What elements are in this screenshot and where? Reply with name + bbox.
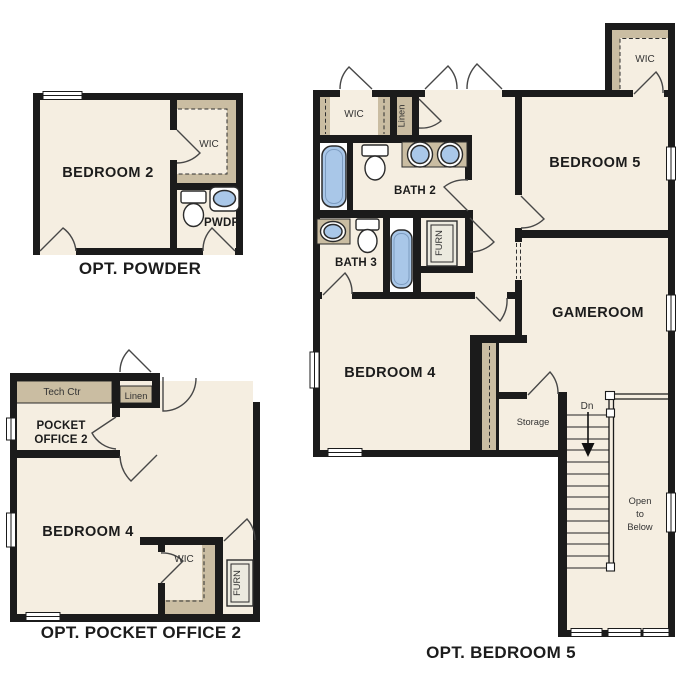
room-label-bath-3: BATH 3 <box>335 257 377 269</box>
room-label-hall-wic: WIC <box>344 109 363 120</box>
plan-title-opt-bedroom-5: OPT. BEDROOM 5 <box>426 643 576 662</box>
wic-shelf-bottom <box>165 600 202 614</box>
room-label-bedroom-4: BEDROOM 4 <box>344 365 435 381</box>
hall-wic-door-swing <box>340 67 372 89</box>
label-furn: FURN <box>434 230 444 256</box>
floorplan-canvas: BEDROOM 2 WIC PWDR OPT. POWDER <box>0 0 687 687</box>
plan-opt-bedroom-5: WIC Linen BATH 2 BEDROOM 5 WIC BATH 3 FU… <box>310 23 676 662</box>
pwdr-door-gap <box>203 248 235 255</box>
label-linen: Linen <box>125 391 148 401</box>
plan-opt-pocket-office-2: Tech Ctr Linen POCKET OFFICE 2 BEDROOM 4… <box>7 350 261 642</box>
label-open-to-below-1: Open <box>629 496 652 506</box>
bedroom2-door-gap <box>40 248 76 255</box>
linen-door-swing <box>120 350 151 372</box>
window <box>43 92 82 100</box>
room-label-bedroom5-wic: WIC <box>635 54 654 65</box>
gameroom-cased-opening <box>515 242 522 280</box>
floorplan-drawing: BEDROOM 2 WIC PWDR OPT. POWDER <box>0 0 687 687</box>
bedroom5-door-gap <box>515 195 522 228</box>
chase-wall-left <box>470 343 482 450</box>
hall-double-door-right-swing <box>467 64 502 89</box>
wic-door-gap <box>170 130 177 160</box>
bath3-toilet <box>356 219 379 253</box>
plan-title-opt-pocket-office-2: OPT. POCKET OFFICE 2 <box>41 623 242 642</box>
chase-wall-right <box>496 343 499 450</box>
label-open-to-below-2: to <box>636 509 644 519</box>
label-linen: Linen <box>397 105 407 128</box>
plan-opt-powder: BEDROOM 2 WIC PWDR OPT. POWDER <box>33 92 243 279</box>
room-label-wic: WIC <box>199 139 218 150</box>
label-storage: Storage <box>517 417 550 427</box>
room-label-bedroom-5: BEDROOM 5 <box>549 155 640 171</box>
label-open-to-below-3: Below <box>627 522 653 532</box>
label-dn: Dn <box>581 401 594 412</box>
toilet <box>181 191 206 227</box>
room-label-bath-2: BATH 2 <box>394 185 436 197</box>
label-tech-ctr: Tech Ctr <box>43 387 81 398</box>
room-label-gameroom: GAMEROOM <box>552 305 644 321</box>
bath2-double-sink <box>402 142 467 167</box>
room-label-pwdr: PWDR <box>204 217 240 229</box>
room-label-wic: WIC <box>174 554 193 565</box>
plan-title-opt-powder: OPT. POWDER <box>79 259 201 278</box>
room-label-pocket-office-line2: OFFICE 2 <box>34 434 87 446</box>
room-label-pocket-office-line1: POCKET <box>36 420 85 432</box>
bath2-tub <box>322 146 346 207</box>
room-label-bedroom-2: BEDROOM 2 <box>62 165 153 181</box>
room-label-bedroom-4: BEDROOM 4 <box>42 524 133 540</box>
bath3-tub <box>391 230 412 288</box>
bath3-sink <box>317 219 350 244</box>
sink <box>210 187 239 211</box>
hall-double-door-left-swing <box>425 66 457 89</box>
label-furn: FURN <box>232 570 242 596</box>
